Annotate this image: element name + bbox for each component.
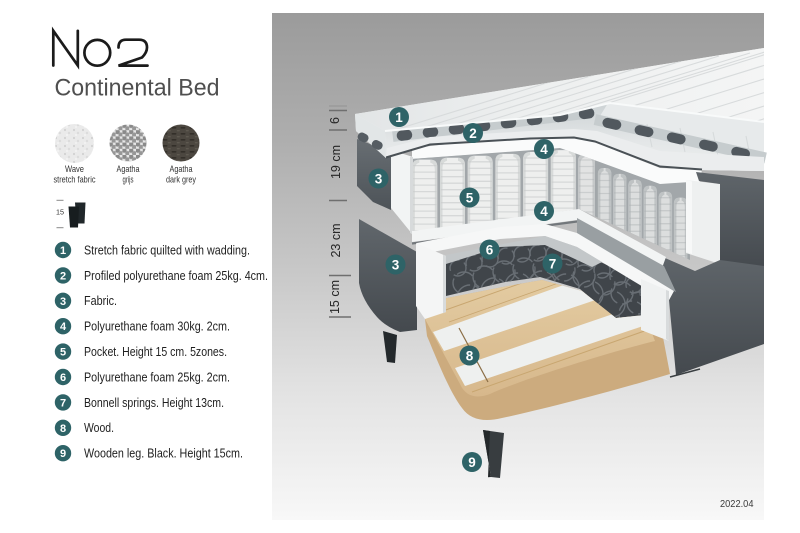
svg-text:6: 6	[328, 117, 342, 124]
svg-text:1: 1	[60, 245, 66, 257]
svg-text:6: 6	[60, 372, 66, 384]
svg-text:Profiled polyurethane foam 25k: Profiled polyurethane foam 25kg. 4cm.	[84, 268, 268, 283]
svg-text:Polyurethane foam 25kg. 2cm.: Polyurethane foam 25kg. 2cm.	[84, 369, 230, 384]
svg-text:4: 4	[540, 142, 548, 157]
svg-text:7: 7	[60, 397, 66, 409]
svg-text:15 cm: 15 cm	[328, 280, 342, 314]
svg-text:4: 4	[60, 321, 67, 333]
svg-text:Pocket. Height 15 cm. 5zones.: Pocket. Height 15 cm. 5zones.	[84, 344, 227, 359]
svg-text:7: 7	[549, 256, 557, 271]
svg-text:dark grey: dark grey	[166, 175, 196, 186]
svg-text:Bonnell springs. Height 13cm.: Bonnell springs. Height 13cm.	[84, 395, 224, 410]
svg-text:Stretch fabric quilted with wa: Stretch fabric quilted with wadding.	[84, 242, 250, 257]
svg-text:8: 8	[466, 348, 474, 363]
svg-text:5: 5	[60, 347, 66, 359]
svg-text:3: 3	[60, 296, 66, 308]
svg-text:5: 5	[466, 190, 474, 205]
svg-text:stretch fabric: stretch fabric	[54, 175, 96, 186]
svg-text:9: 9	[60, 448, 66, 460]
svg-text:Wave: Wave	[65, 164, 84, 175]
svg-text:3: 3	[375, 171, 383, 186]
svg-text:Wooden leg. Black. Height 15cm: Wooden leg. Black. Height 15cm.	[84, 446, 243, 461]
svg-text:15: 15	[56, 208, 64, 217]
svg-text:Wood.: Wood.	[84, 420, 114, 435]
svg-text:Polyurethane foam 30kg. 2cm.: Polyurethane foam 30kg. 2cm.	[84, 319, 230, 334]
svg-text:4: 4	[540, 204, 548, 219]
svg-text:Agatha: Agatha	[117, 164, 141, 175]
svg-text:23 cm: 23 cm	[329, 223, 343, 257]
svg-text:2: 2	[469, 126, 477, 141]
svg-text:2: 2	[60, 270, 66, 282]
svg-text:grijs: grijs	[123, 175, 134, 186]
svg-text:19 cm: 19 cm	[329, 145, 343, 179]
svg-text:Continental Bed: Continental Bed	[55, 75, 220, 102]
svg-text:Fabric.: Fabric.	[84, 293, 117, 308]
svg-text:9: 9	[468, 455, 476, 470]
svg-text:6: 6	[486, 242, 494, 257]
svg-text:1: 1	[395, 110, 403, 125]
svg-text:2022.04: 2022.04	[720, 498, 754, 510]
svg-text:8: 8	[60, 423, 66, 435]
svg-text:Agatha: Agatha	[170, 164, 194, 175]
svg-text:3: 3	[392, 257, 400, 272]
